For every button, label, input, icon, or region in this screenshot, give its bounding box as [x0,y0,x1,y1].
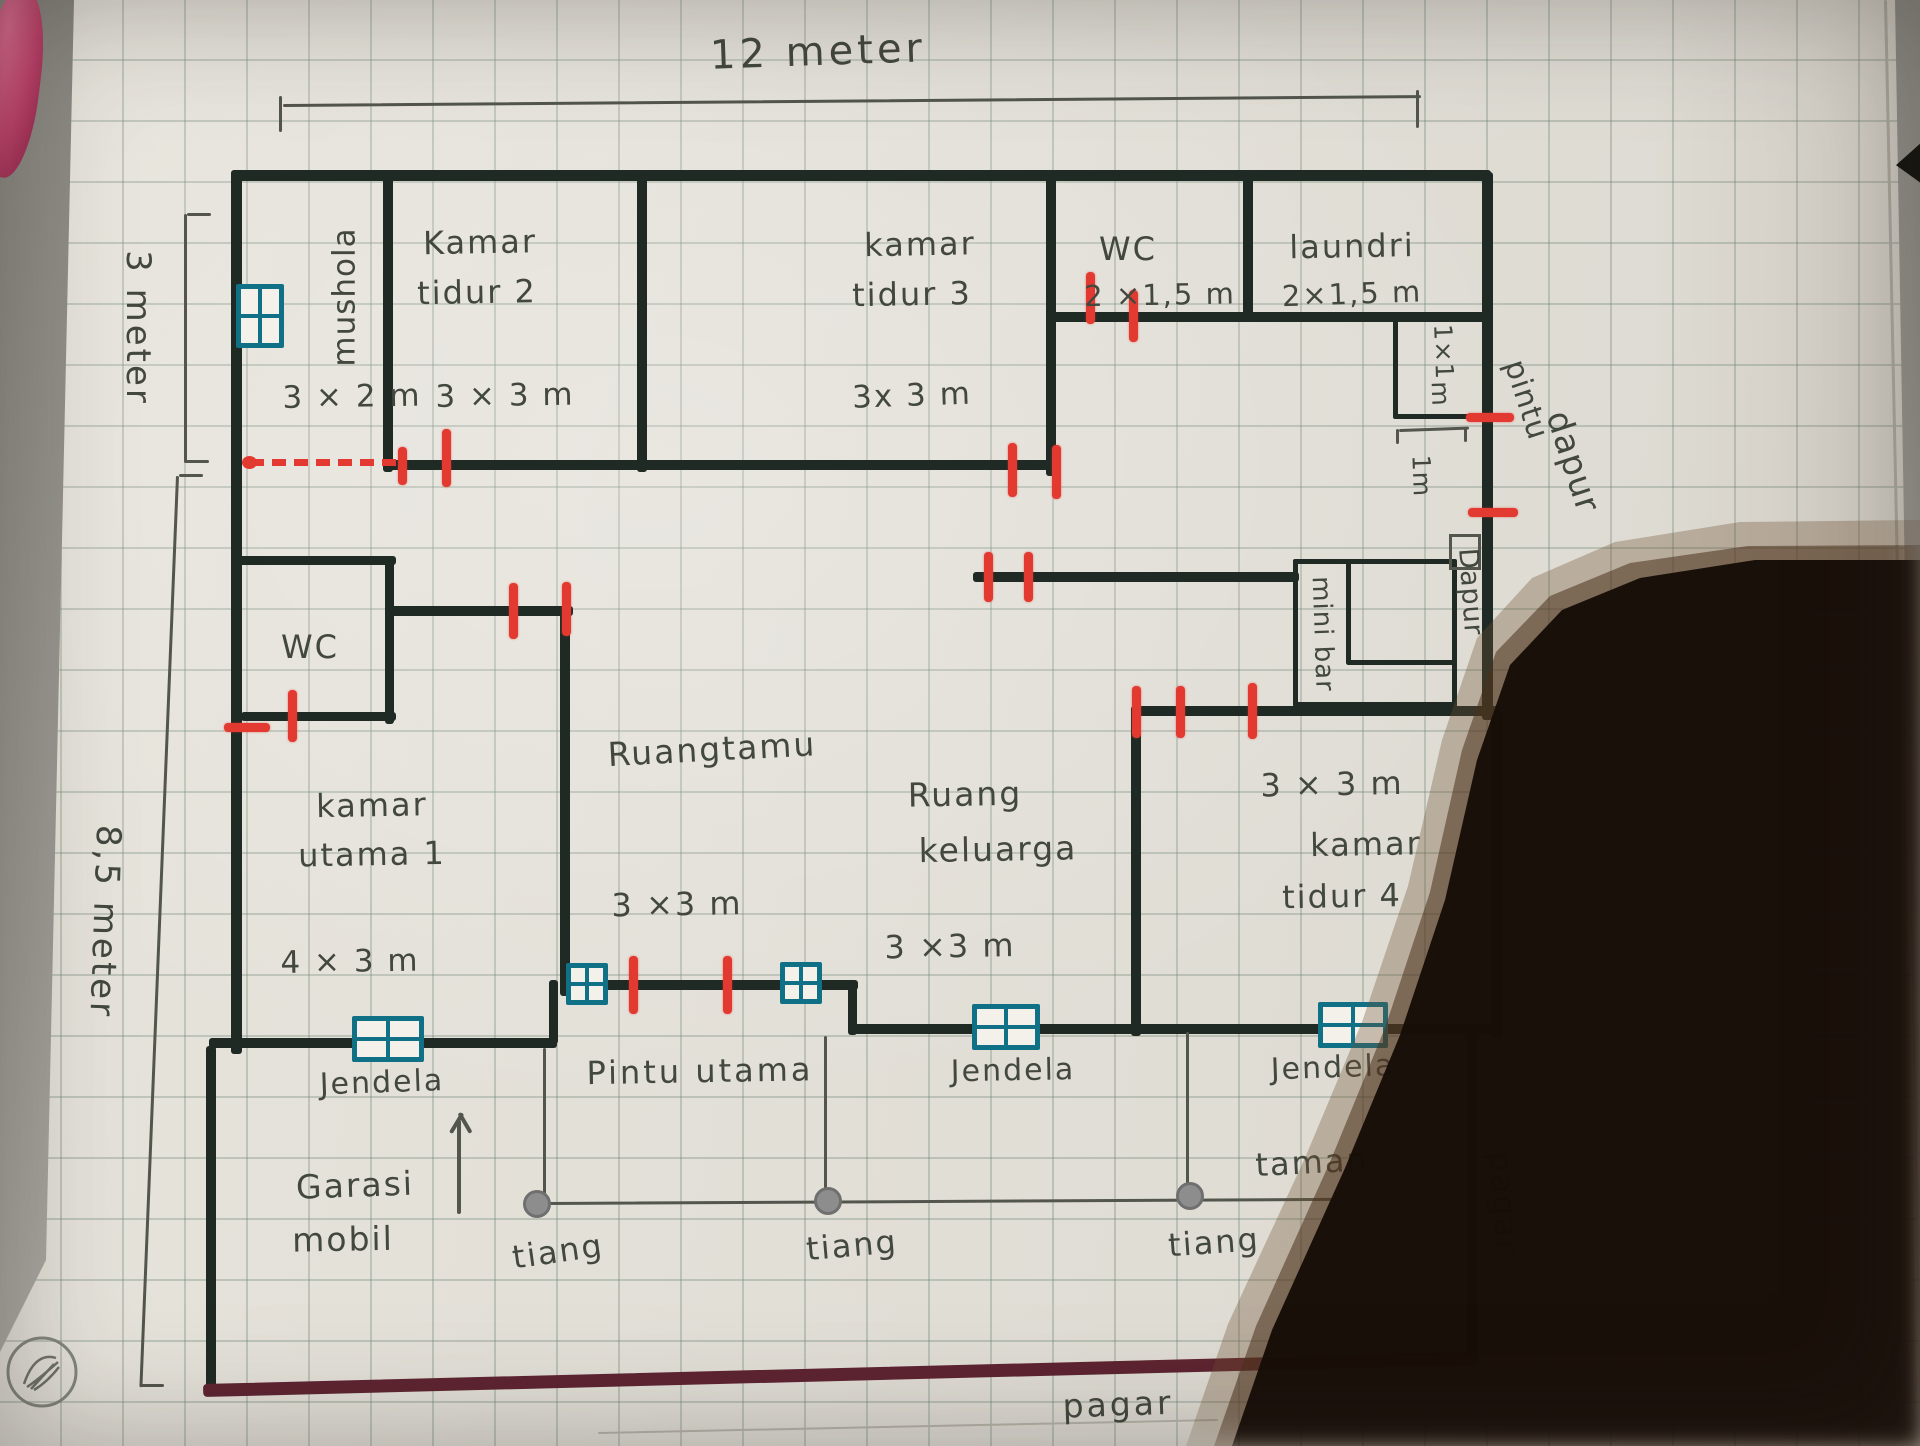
dim-left1-line [184,214,187,463]
room-mushola-size: 3 × 2 m [282,380,422,415]
window-mullion [977,1025,1035,1029]
outer-right-c [1467,1030,1477,1364]
dim-top: 12 meter [709,27,926,77]
tiang-circle-1 [523,1190,551,1218]
dim-left-bottom: 8,5 meter [83,824,125,1019]
label-jendela-left: Jendela [319,1065,445,1101]
outer-top [235,170,1491,181]
outer-left-garage [206,1046,216,1394]
wall-dapur [973,572,1299,582]
room-mini-bar: mini bar [1306,576,1337,693]
dim-top-line [283,95,1421,107]
label-taman: taman [1255,1143,1370,1182]
wall-kt3-wc [1046,176,1056,476]
tiang-circle-2 [814,1187,842,1215]
room-kamar-utama-size: 4 × 3 m [280,945,420,980]
wall-corridor [389,606,573,616]
door-marker [1468,508,1518,517]
dim-left2-line [139,476,179,1387]
door-marker [442,429,451,487]
dim-1m-tick-a [1396,429,1399,444]
room-kamar-tidur4-a: kamar [1310,827,1422,863]
door-marker [1132,686,1141,738]
dim-top-tick-l [279,96,282,132]
label-pintu-dapur-b: dapur [1539,407,1605,517]
wall-front-right [848,1024,1503,1034]
wall-rk-kt4 [1131,706,1141,1036]
wall-step-left [549,980,558,1044]
label-pintu-utama: Pintu utama [586,1053,814,1091]
door-marker [398,447,407,485]
door-marker [562,582,571,636]
room-1x1-b: m [1426,381,1453,407]
dim-top-tick-r [1416,90,1419,128]
label-pagar-right: pagar [1483,1150,1524,1255]
label-garasi-b: mobil [292,1222,394,1258]
door-marker [509,583,518,639]
room-ruang-tamu: Ruangtamu [607,727,817,773]
room-ruang-keluarga-b: keluarga [918,831,1077,868]
wall-wc-laundri [1243,176,1253,322]
room-ruang-tamu-size: 3 ×3 m [611,887,743,923]
room-wc-top-size: 2 ×1,5 m [1084,278,1236,311]
wall-wcleft-bottom [241,712,396,721]
door-marker [1052,445,1061,499]
room-ruang-keluarga-a: Ruang [907,777,1022,814]
door-marker [984,552,993,602]
door-marker [629,956,638,1014]
label-pagar-bottom: pagar [1062,1386,1174,1424]
room-kamar-utama-a: kamar [316,788,428,824]
room-kamar-utama-b: utama 1 [298,837,446,873]
window-mullion [241,314,279,318]
porch-line-3 [1186,1032,1189,1198]
door-marker [224,723,270,732]
wall-mushola-kt2 [383,172,393,472]
label-tiang-1: tiang [510,1229,605,1275]
wall-kt23-bottom [383,460,1059,470]
dim-left2-tick-a [179,474,203,477]
wall-wc-bottom [1050,312,1255,322]
room-laundri-size: 2×1,5 m [1281,276,1422,311]
window-mushola [236,284,284,348]
outer-right-b [1491,712,1502,1038]
room-mushola: mushola [329,227,362,366]
window-kt4 [1318,1002,1388,1048]
label-jendela-mid: Jendela [950,1054,1075,1088]
room-kamar-tidur2-b: tidur 2 [417,275,537,311]
room-kamar-tidur2-a: Kamar [423,225,538,261]
photo-of-floor-plan-sketch: 12 meter3 meter8,5 metermushola3 × 2 mKa… [0,0,1920,1446]
window-mullion [785,981,817,985]
label-tiang-3: tiang [1167,1223,1261,1263]
label-tiang-2: tiang [805,1225,899,1266]
label-jendela-right: Jendela [1270,1050,1396,1086]
window-mullion [357,1037,419,1041]
dim-1m-tick-b [1464,427,1467,442]
room-kamar-tidur4-size: 3 × 3 m [1260,767,1404,803]
paper-edge-right [1884,0,1900,640]
door-marker [1466,413,1514,422]
window-mullion [571,982,603,986]
wall-wcleft-right [385,556,394,724]
room-1x1-a: 1×1 [1429,324,1457,381]
porch-line-1 [543,1048,546,1204]
room-kamar-tidur3-a: kamar [864,227,976,263]
label-garasi-a: Garasi [295,1167,414,1206]
floor-plan: 12 meter3 meter8,5 metermushola3 × 2 mKa… [0,0,1920,1446]
room-kamar-tidur4-b: tidur 4 [1282,879,1402,915]
door-marker [1248,683,1257,739]
tiang-circle-3 [1176,1182,1204,1210]
wall-wcleft-top [236,556,396,565]
stamp-logo [4,1334,80,1410]
window-garasi [352,1016,424,1062]
dim-1m: 1m [1407,454,1435,497]
room-kamar-tidur3-size: 3x 3 m [852,378,973,415]
door-marker [723,956,732,1014]
window-mullion [1323,1023,1383,1027]
dim-1m-bracket [1399,427,1469,432]
wall-ruangtamu-left [560,606,570,996]
room-kamar-tidur3-b: tidur 3 [852,277,972,313]
dim-left1-tick-b [185,460,209,463]
opening-dashed-line [250,459,396,466]
porch-line-2 [824,1036,827,1204]
room-dapur: Dapur [1453,547,1487,636]
wall-kt4-top [1131,706,1499,716]
fence-line [203,1352,1479,1397]
room-wc-left: WC [281,631,339,665]
window-keluarga [972,1004,1040,1050]
window-entry-left [566,963,608,1005]
wall-kt2-kt3 [637,176,647,472]
door-marker [1008,443,1017,497]
door-marker [1024,552,1033,602]
dim-left2-tick-b [140,1384,164,1387]
dim-left-top: 3 meter [119,250,155,406]
door-marker [1176,686,1185,738]
north-arrow-shaft [457,1120,461,1214]
room-ruang-keluarga-size: 3 ×3 m [884,929,1016,965]
room-wc-top: WC [1099,233,1157,267]
room-kamar-tidur2-size: 3 × 3 m [435,379,575,414]
dim-left1-tick-a [187,213,211,216]
door-marker [288,690,297,742]
room-laundri: laundri [1289,229,1415,265]
outer-right-a [1482,172,1493,720]
porch-line-h [546,1198,1332,1205]
opening-dot [242,456,257,469]
window-entry-right [780,962,822,1004]
